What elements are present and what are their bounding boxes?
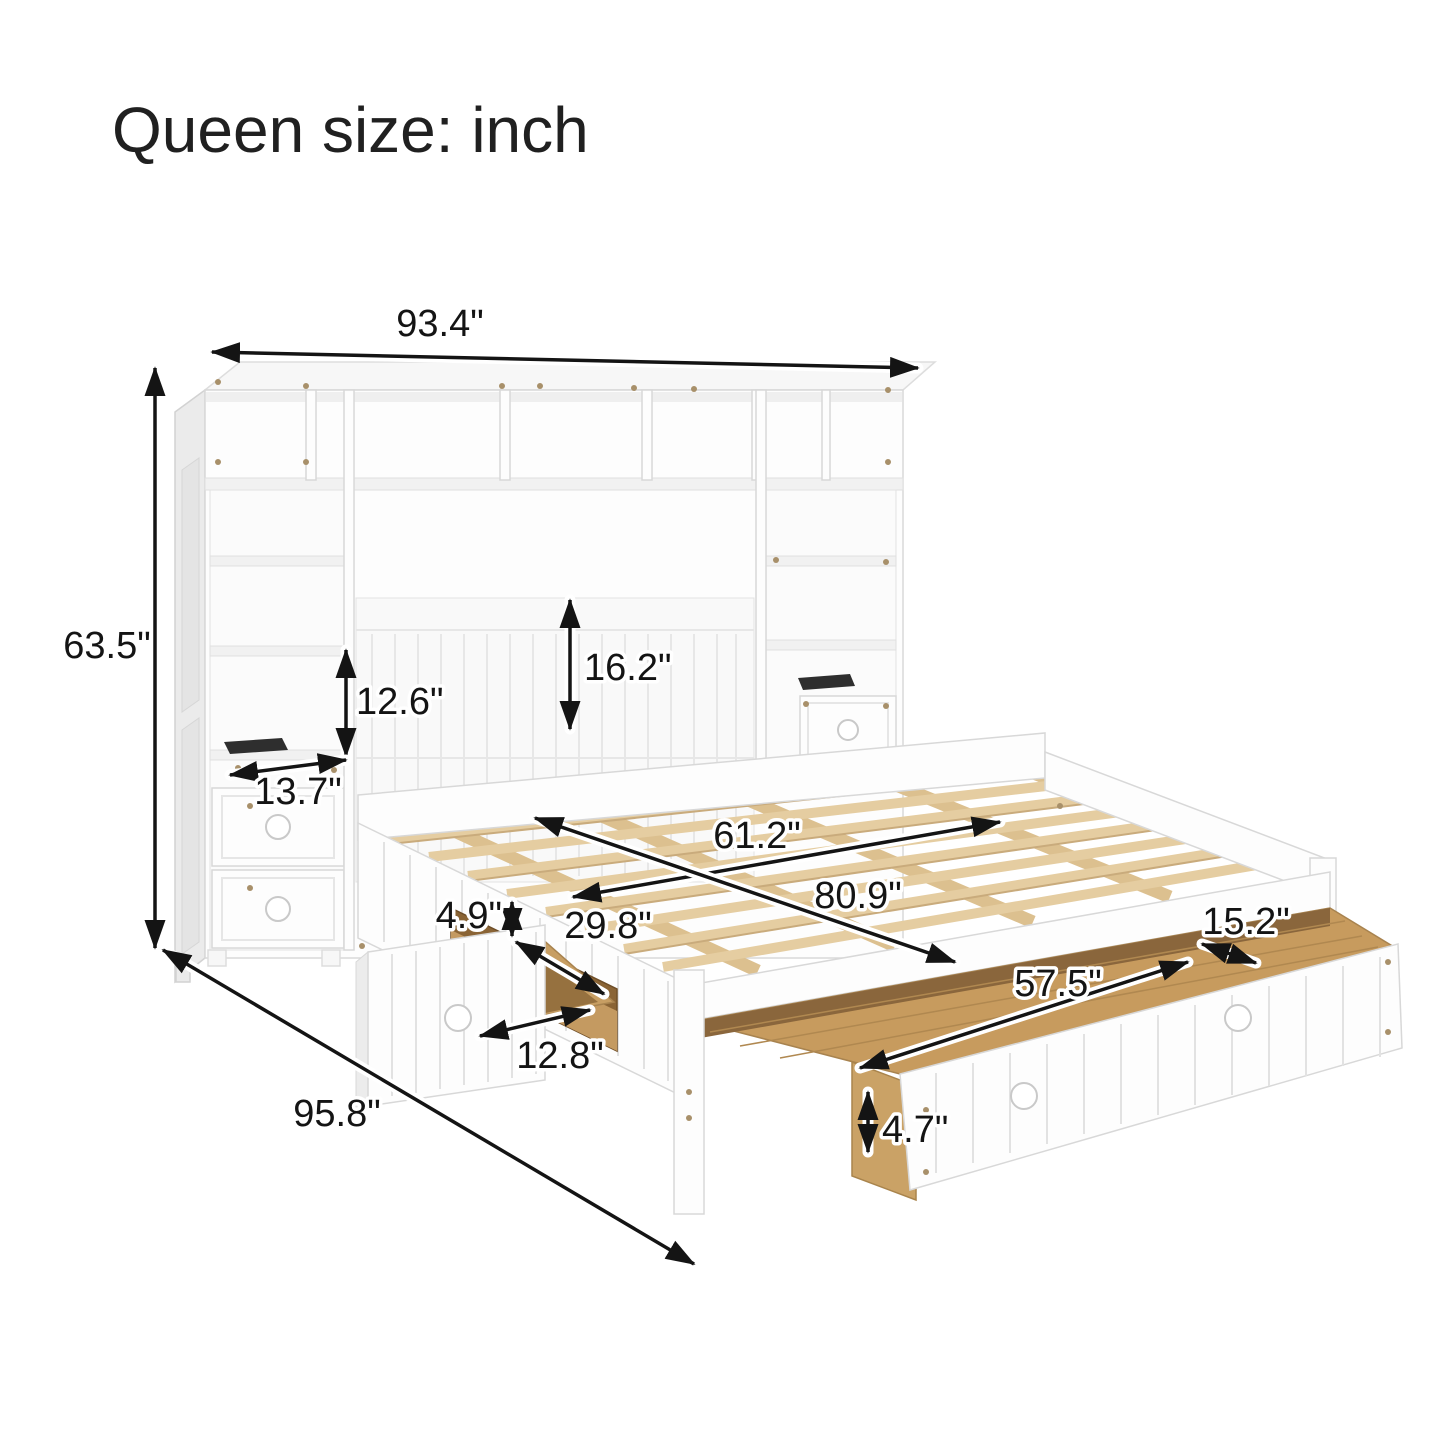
dimension-label-shelf-opening-height: 12.6" (356, 681, 443, 723)
dimension-label-side-rail-above-drawer: 4.9" (436, 895, 502, 937)
dimension-overall-height: 63.5" (63, 368, 155, 948)
dimension-label-headboard-panel-height: 16.2" (584, 647, 671, 689)
right-tower-front-post (756, 390, 766, 770)
dimension-label-overall-depth: 95.8" (293, 1093, 380, 1135)
left-side-panel-inset-top (182, 458, 199, 712)
left-tower-foot-right (322, 950, 340, 966)
product-dimension-diagram: Queen size: inch (0, 0, 1445, 1445)
left-tower-foot-left (208, 950, 226, 966)
bed-diagram-canvas: Queen size: inch (0, 0, 1445, 1445)
left-tower-shelf-2 (210, 646, 346, 656)
dimension-label-side-drawer-width: 29.8" (564, 905, 651, 947)
dimension-label-bed-slat-length: 80.9" (814, 875, 901, 917)
dimension-label-side-drawer-depth: 12.8" (516, 1035, 603, 1077)
right-tower-shelf-2 (764, 640, 896, 650)
dimension-side-rail-above-drawer: 4.9" (436, 895, 512, 937)
bed-frame (356, 733, 1402, 1214)
left-tower-drawer-top-knob (266, 815, 290, 839)
left-tower-shelf-1 (210, 556, 346, 566)
dimension-label-tower-shelf-depth: 13.7" (254, 771, 341, 813)
dimension-label-bed-slat-width: 61.2" (713, 815, 800, 857)
right-tower-drawer-knob (838, 720, 858, 740)
dimension-label-foot-drawer-inner-height: 4.7" (882, 1109, 948, 1151)
dimension-label-foot-drawer-depth: 15.2" (1202, 901, 1289, 943)
left-tower-drawer-bottom-knob (266, 897, 290, 921)
dimension-label-overall-height: 63.5" (63, 625, 150, 667)
side-drawer-left-cap (356, 952, 368, 1116)
dimension-label-overall-width: 93.4" (396, 303, 483, 345)
left-side-panel-inset-bottom (182, 718, 199, 954)
side-drawer-knob (445, 1005, 471, 1031)
dimension-label-foot-drawer-width: 57.5" (1014, 963, 1101, 1005)
foot-drawer-knob-left (1011, 1083, 1037, 1109)
foot-drawer-knob-right (1225, 1005, 1251, 1031)
right-tower-shelf-1 (764, 556, 896, 566)
page-title: Queen size: inch (112, 94, 589, 166)
dimension-overall-width: 93.4" (212, 303, 918, 368)
